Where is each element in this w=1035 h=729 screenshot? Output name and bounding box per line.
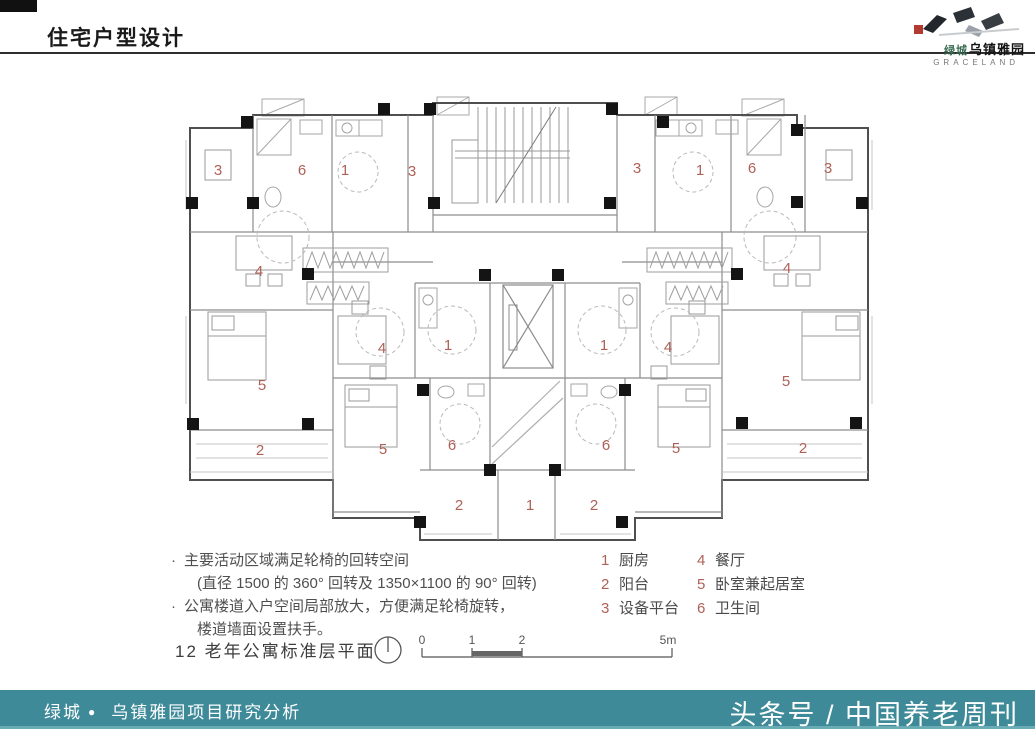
legend-number: 2 (601, 573, 619, 597)
logo-brand-text: 绿城 (944, 45, 968, 57)
legend-room-name: 厨房 (619, 552, 649, 569)
room-number-label: 1 (341, 162, 349, 179)
columns (186, 103, 868, 528)
outer-wall (190, 103, 868, 540)
scale-bar (422, 648, 672, 657)
room-number-label: 3 (824, 160, 832, 177)
room-number-label: 5 (258, 377, 266, 394)
room-number-label: 2 (256, 442, 264, 459)
room-number-label: 2 (455, 497, 463, 514)
closets (303, 248, 732, 304)
footer-bar: 绿城●乌镇雅园项目研究分析 头条号 / 中国养老周刊 (0, 690, 1035, 729)
room-labels: 3613316344441155665522212 (214, 160, 832, 514)
figure-caption: 12 老年公寓标准层平面 (175, 637, 376, 662)
logo-project-text: 乌镇雅园 (969, 42, 1025, 57)
legend-number: 1 (601, 549, 619, 573)
room-number-label: 5 (379, 441, 387, 458)
note-text: 公寓楼道入户空间局部放大，方便满足轮椅旋转， (184, 598, 514, 615)
legend-column-1: 1厨房2阳台3设备平台 (601, 549, 679, 621)
note-line: ·主要活动区域满足轮椅的回转空间 (171, 549, 591, 572)
room-legend: 1厨房2阳台3设备平台 4餐厅5卧室兼起居室6卫生间 (601, 549, 805, 621)
legend-item: 4餐厅 (697, 549, 805, 573)
legend-column-2: 4餐厅5卧室兼起居室6卫生间 (697, 549, 805, 621)
note-line: (直径 1500 的 360° 回转及 1350×1100 的 90° 回转) (171, 572, 591, 595)
tables (205, 150, 852, 379)
fixtures (257, 119, 781, 398)
legend-number: 5 (697, 573, 715, 597)
footer-project-title: 乌镇雅园项目研究分析 (111, 703, 301, 722)
legend-item: 1厨房 (601, 549, 679, 573)
room-number-label: 5 (782, 373, 790, 390)
logo-graphic (909, 3, 1029, 43)
room-number-label: 3 (214, 162, 222, 179)
footer-brand: 绿城 (44, 703, 82, 722)
room-number-label: 1 (526, 497, 534, 514)
footer-project-info: 绿城●乌镇雅园项目研究分析 (44, 698, 301, 723)
room-number-label: 5 (672, 440, 680, 457)
room-number-label: 4 (255, 263, 263, 280)
footer-bullet-icon: ● (88, 705, 97, 719)
window-lines (186, 140, 872, 534)
legend-number: 6 (697, 597, 715, 621)
legend-number: 4 (697, 549, 715, 573)
note-text: (直径 1500 的 360° 回转及 1350×1100 的 90° 回转) (197, 575, 537, 592)
room-number-label: 3 (408, 163, 416, 180)
legend-item: 2阳台 (601, 573, 679, 597)
room-number-label: 1 (600, 337, 608, 354)
title-divider (0, 52, 1035, 54)
room-number-label: 6 (298, 162, 306, 179)
room-number-label: 2 (590, 497, 598, 514)
slide: 住宅户型设计 绿城乌镇雅园 GRACELAND (0, 0, 1035, 729)
turning-circles (257, 152, 796, 444)
room-number-label: 2 (799, 440, 807, 457)
room-number-label: 4 (664, 339, 672, 356)
room-number-label: 6 (748, 160, 756, 177)
room-number-label: 4 (783, 260, 791, 277)
accessibility-notes: ·主要活动区域满足轮椅的回转空间(直径 1500 的 360° 回转及 1350… (171, 549, 591, 641)
scale-tick-label: 5m (660, 633, 677, 647)
note-bullet: · (171, 549, 184, 572)
legend-room-name: 设备平台 (619, 600, 679, 617)
brand-logo: 绿城乌镇雅园 GRACELAND (909, 3, 1029, 69)
inner-walls (190, 103, 868, 540)
legend-room-name: 卧室兼起居室 (715, 576, 805, 593)
footer-publisher: 头条号 / 中国养老周刊 (729, 693, 1019, 729)
legend-item: 3设备平台 (601, 597, 679, 621)
note-text: 楼道墙面设置扶手。 (197, 621, 332, 638)
legend-room-name: 餐厅 (715, 552, 745, 569)
note-line: ·公寓楼道入户空间局部放大，方便满足轮椅旋转， (171, 595, 591, 618)
legend-room-name: 卫生间 (715, 600, 760, 617)
corner-accent-block (0, 0, 37, 12)
room-number-label: 3 (633, 160, 641, 177)
note-text: 主要活动区域满足轮椅的回转空间 (184, 552, 409, 569)
staircase (452, 107, 570, 203)
room-number-label: 1 (696, 162, 704, 179)
legend-item: 5卧室兼起居室 (697, 573, 805, 597)
elevator-shaft (492, 285, 563, 464)
legend-room-name: 阳台 (619, 576, 649, 593)
legend-item: 6卫生间 (697, 597, 805, 621)
page-title: 住宅户型设计 (47, 22, 185, 52)
room-number-label: 6 (448, 437, 456, 454)
room-number-label: 4 (378, 340, 386, 357)
logo-subtitle: GRACELAND (933, 58, 1019, 67)
room-number-label: 6 (602, 437, 610, 454)
note-bullet: · (171, 595, 184, 618)
logo-name: 绿城乌镇雅园 (944, 39, 1025, 58)
legend-number: 3 (601, 597, 619, 621)
room-number-label: 1 (444, 337, 452, 354)
